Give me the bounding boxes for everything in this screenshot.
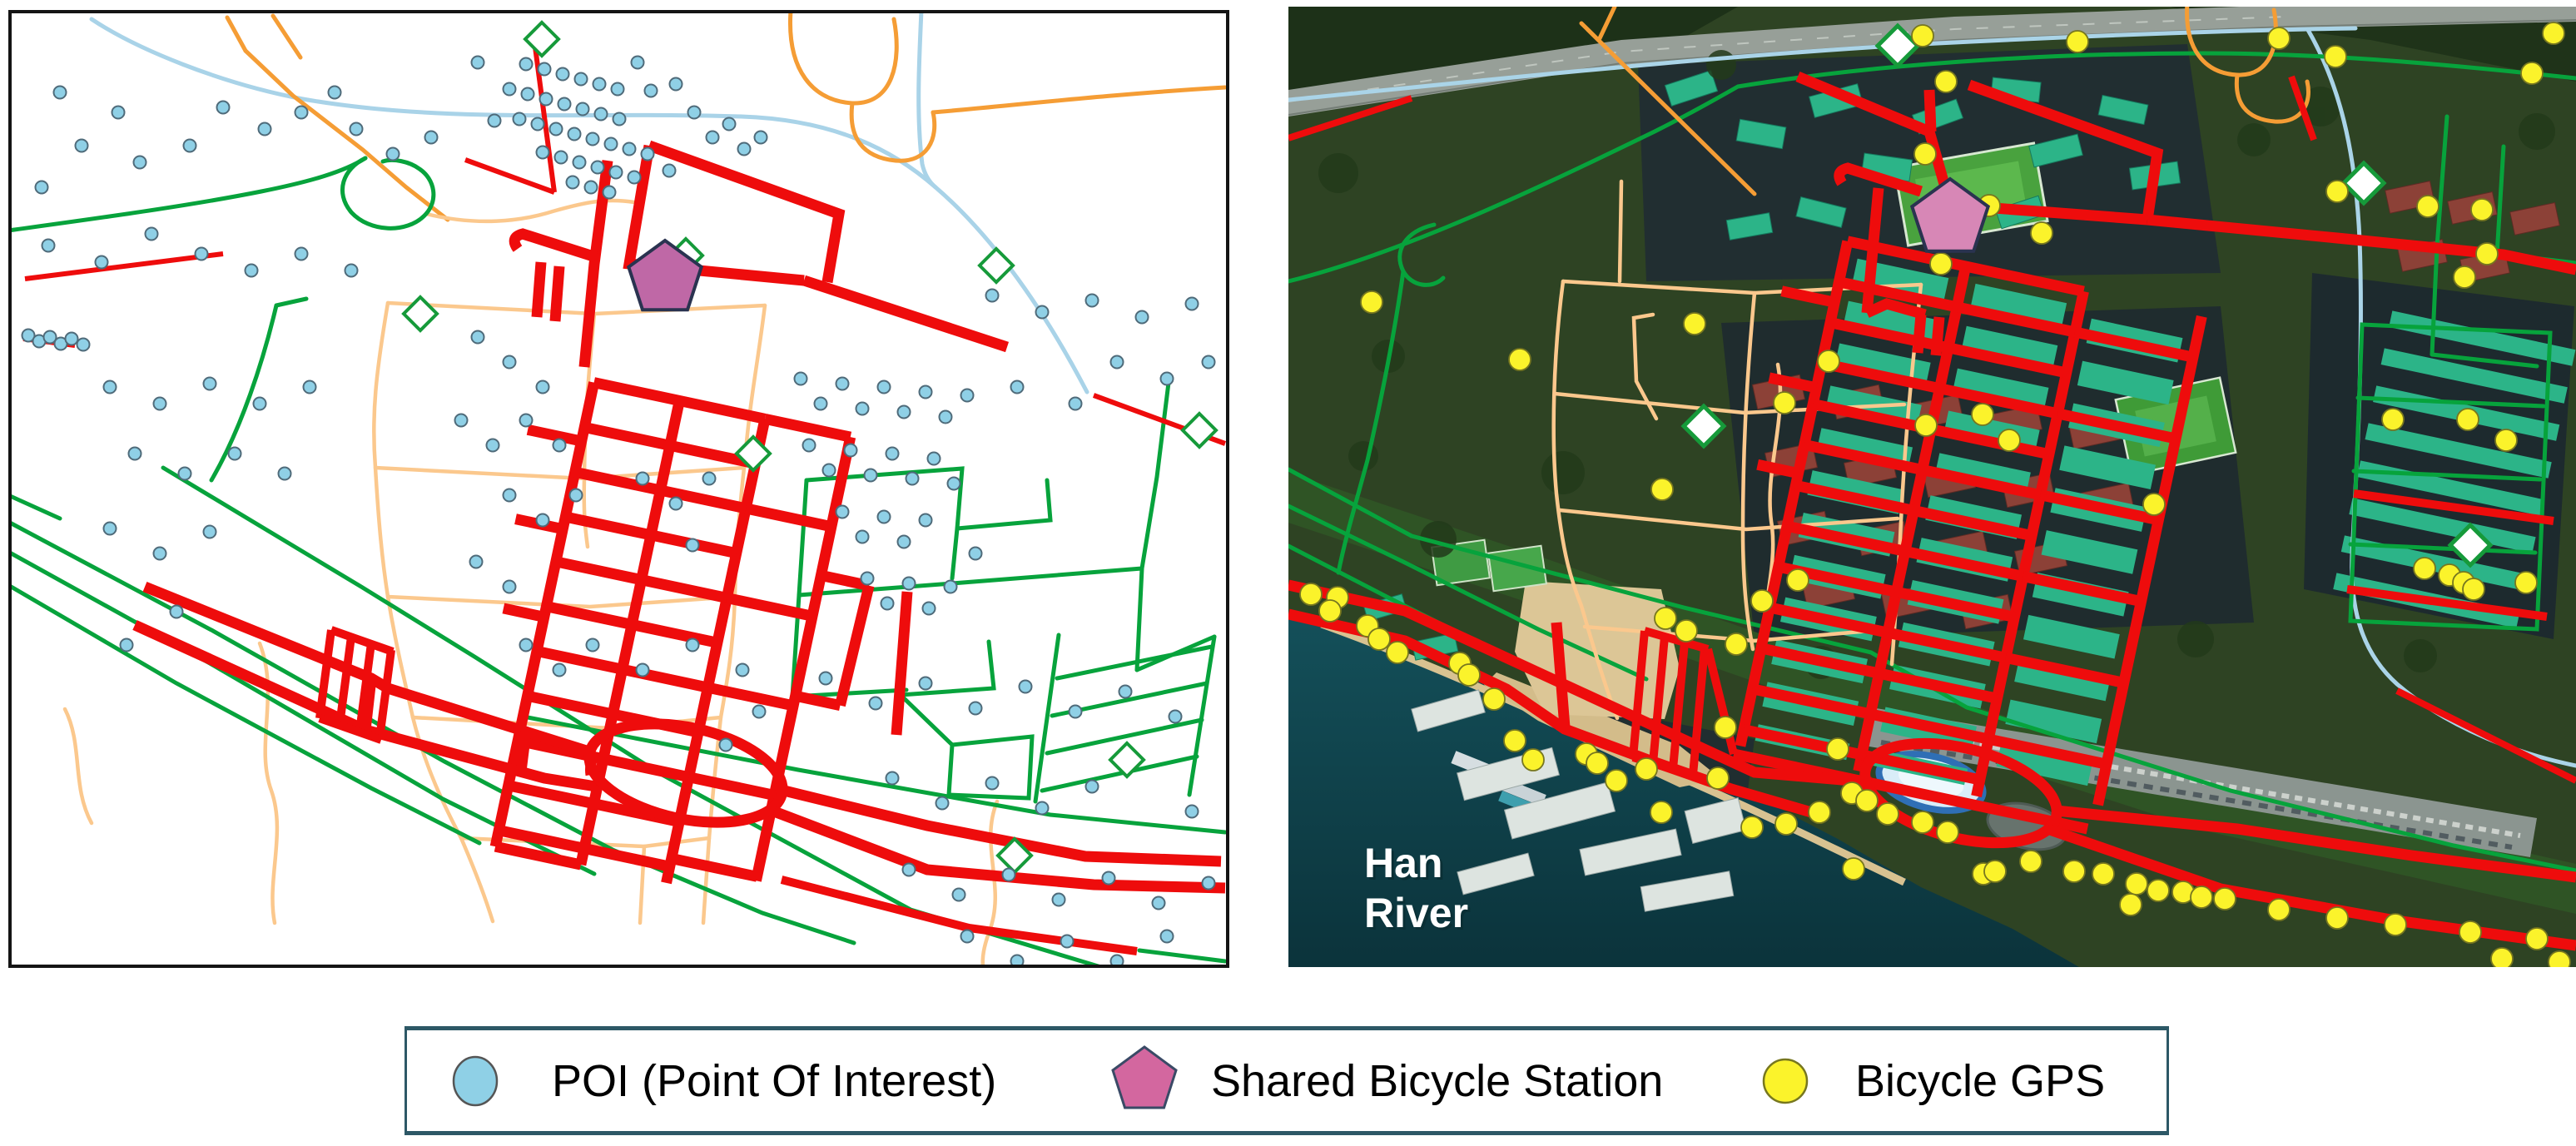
gps-marker bbox=[2326, 907, 2348, 929]
poi-marker bbox=[632, 57, 644, 69]
poi-marker bbox=[295, 248, 308, 260]
poi-marker bbox=[279, 468, 291, 480]
gps-marker bbox=[2147, 880, 2169, 901]
poi-marker bbox=[970, 548, 982, 560]
poi-marker bbox=[610, 166, 623, 179]
gps-marker bbox=[2515, 572, 2537, 593]
poi-map-panel bbox=[8, 10, 1229, 968]
gps-marker bbox=[1775, 813, 1797, 835]
poi-dot-layer bbox=[22, 57, 1215, 965]
poi-marker bbox=[134, 156, 146, 169]
gps-marker bbox=[1809, 801, 1830, 823]
poi-marker bbox=[567, 176, 579, 189]
poi-marker bbox=[555, 151, 568, 164]
gps-marker bbox=[1912, 811, 1933, 833]
poi-marker bbox=[898, 406, 911, 419]
poi-marker bbox=[522, 88, 534, 101]
gps-marker bbox=[1300, 583, 1322, 605]
poi-marker bbox=[537, 514, 549, 527]
poi-marker bbox=[687, 639, 699, 652]
poi-marker bbox=[558, 98, 571, 111]
gps-marker bbox=[1715, 717, 1736, 738]
poi-marker bbox=[514, 113, 526, 126]
poi-marker bbox=[1103, 872, 1115, 885]
poi-marker bbox=[472, 57, 484, 69]
gps-marker bbox=[1707, 767, 1729, 789]
poi-marker bbox=[1003, 869, 1015, 881]
poi-marker bbox=[66, 333, 78, 345]
gps-marker bbox=[2543, 22, 2564, 44]
poi-marker bbox=[1111, 356, 1124, 369]
poi-marker bbox=[179, 468, 191, 480]
legend-label-poi: POI (Point Of Interest) bbox=[552, 1055, 996, 1107]
poi-marker bbox=[196, 248, 208, 260]
svg-text:River: River bbox=[1364, 890, 1468, 936]
gps-marker bbox=[1361, 291, 1382, 313]
poi-marker bbox=[1011, 381, 1024, 394]
poi-marker bbox=[472, 331, 484, 344]
diamond-marker bbox=[1110, 743, 1144, 776]
gps-marker bbox=[2491, 948, 2513, 967]
poi-marker bbox=[520, 414, 533, 427]
gps-marker bbox=[2526, 928, 2548, 950]
poi-marker bbox=[229, 448, 241, 460]
poi-marker bbox=[121, 639, 133, 652]
poi-marker bbox=[204, 378, 216, 390]
gps-marker bbox=[1368, 628, 1390, 650]
poi-marker bbox=[489, 115, 501, 127]
gps-marker bbox=[2067, 31, 2088, 52]
poi-marker bbox=[940, 411, 952, 424]
poi-marker bbox=[856, 403, 869, 415]
poi-marker bbox=[154, 398, 166, 410]
poi-marker bbox=[570, 489, 583, 502]
poi-marker bbox=[259, 123, 271, 136]
poi-marker bbox=[537, 381, 549, 394]
gps-marker bbox=[1751, 590, 1773, 612]
poi-marker bbox=[738, 143, 751, 156]
gps-marker bbox=[1914, 143, 1936, 165]
gps-marker bbox=[1606, 770, 1627, 791]
gps-marker bbox=[2457, 409, 2479, 430]
poi-marker bbox=[803, 439, 816, 452]
poi-marker bbox=[553, 664, 566, 677]
poi-marker bbox=[945, 581, 957, 593]
poi-marker bbox=[1086, 295, 1099, 307]
diamond-marker bbox=[980, 249, 1013, 282]
poi-marker bbox=[865, 469, 877, 482]
poi-marker bbox=[870, 697, 882, 710]
poi-marker bbox=[637, 473, 649, 485]
gps-marker bbox=[1509, 349, 1531, 370]
poi-marker bbox=[295, 107, 308, 119]
poi-marker bbox=[823, 464, 836, 477]
poi-marker bbox=[1061, 935, 1074, 948]
poi-marker bbox=[961, 930, 974, 943]
diamond-marker bbox=[525, 22, 558, 56]
poi-marker bbox=[146, 228, 158, 241]
poi-marker bbox=[1186, 298, 1199, 310]
gps-marker bbox=[1725, 633, 1747, 655]
poi-marker bbox=[54, 87, 67, 99]
gps-marker bbox=[1827, 738, 1849, 760]
poi-marker bbox=[1203, 356, 1215, 369]
gps-marker bbox=[1675, 620, 1697, 642]
gps-marker bbox=[2454, 266, 2475, 288]
gps-marker bbox=[1937, 821, 1958, 843]
gps-marker bbox=[2031, 222, 2052, 244]
gps-marker bbox=[1458, 664, 1480, 686]
gps-marker bbox=[1930, 253, 1952, 275]
gps-marker bbox=[2521, 62, 2543, 84]
gps-marker bbox=[2417, 196, 2439, 217]
poi-marker bbox=[76, 140, 88, 152]
poi-marker bbox=[246, 265, 258, 277]
poi-marker bbox=[723, 118, 736, 131]
poi-marker bbox=[1111, 955, 1124, 965]
poi-marker bbox=[936, 797, 949, 810]
poi-marker bbox=[154, 548, 166, 560]
poi-marker bbox=[77, 339, 90, 351]
poi-marker bbox=[903, 578, 916, 590]
gps-marker bbox=[1998, 429, 2020, 451]
poi-marker bbox=[878, 381, 891, 394]
gps-marker bbox=[2326, 181, 2348, 202]
gps-marker bbox=[2463, 578, 2484, 600]
poi-marker bbox=[1020, 681, 1032, 693]
poi-marker bbox=[104, 523, 117, 535]
poi-marker bbox=[1203, 877, 1215, 890]
poi-marker bbox=[1070, 706, 1082, 718]
poi-marker bbox=[906, 473, 919, 485]
gps-marker bbox=[2092, 863, 2114, 885]
poi-marker bbox=[504, 356, 516, 369]
poi-marker bbox=[425, 131, 438, 144]
poi-marker bbox=[856, 531, 869, 543]
gps-marker bbox=[1843, 858, 1864, 880]
poi-marker bbox=[986, 777, 999, 790]
poi-marker bbox=[881, 598, 894, 610]
poi-marker bbox=[605, 138, 618, 151]
gps-marker bbox=[1741, 816, 1763, 838]
poi-marker bbox=[112, 107, 125, 119]
poi-marker bbox=[886, 772, 899, 785]
poi-marker bbox=[986, 290, 999, 302]
poi-marker bbox=[1011, 955, 1024, 965]
gps-marker bbox=[2549, 951, 2570, 967]
poi-marker bbox=[920, 386, 932, 399]
poi-marker bbox=[603, 186, 616, 199]
poi-marker bbox=[592, 161, 604, 174]
diamond-marker bbox=[1183, 414, 1216, 447]
poi-marker bbox=[707, 131, 719, 144]
gps-marker bbox=[2191, 886, 2212, 908]
poi-marker bbox=[129, 448, 141, 460]
poi-marker bbox=[795, 373, 807, 385]
poi-marker bbox=[304, 381, 316, 394]
poi-marker bbox=[1036, 802, 1049, 815]
poi-marker bbox=[387, 148, 400, 161]
poi-marker bbox=[329, 87, 341, 99]
poi-marker bbox=[1053, 894, 1065, 906]
poi-marker bbox=[1136, 311, 1149, 324]
poi-marker bbox=[42, 240, 55, 252]
poi-marker bbox=[628, 171, 641, 184]
poi-marker bbox=[961, 389, 974, 402]
poi-marker bbox=[254, 398, 266, 410]
legend-label-station: Shared Bicycle Station bbox=[1211, 1055, 1663, 1107]
poi-marker bbox=[845, 444, 857, 457]
poi-marker bbox=[455, 414, 468, 427]
poi-marker bbox=[539, 63, 551, 76]
diamond-marker bbox=[404, 297, 437, 330]
poi-marker bbox=[532, 118, 544, 131]
poi-marker bbox=[953, 889, 965, 901]
poi-marker bbox=[504, 581, 516, 593]
svg-text:Han: Han bbox=[1364, 840, 1442, 886]
gps-marker bbox=[1522, 749, 1544, 771]
poi-marker bbox=[670, 498, 682, 510]
gps-marker bbox=[2268, 27, 2290, 49]
poi-marker bbox=[753, 706, 766, 718]
poi-marker bbox=[898, 536, 911, 548]
poi-marker bbox=[836, 506, 849, 518]
gps-marker bbox=[1877, 803, 1898, 825]
poi-marker bbox=[470, 556, 483, 568]
poi-marker bbox=[928, 453, 941, 465]
poi-marker bbox=[350, 123, 363, 136]
poi-marker bbox=[637, 664, 649, 677]
gps-marker bbox=[2382, 409, 2404, 430]
poi-marker bbox=[1186, 806, 1199, 818]
gps-marker bbox=[1787, 569, 1809, 591]
poi-marker bbox=[568, 128, 581, 141]
poi-marker bbox=[171, 606, 183, 618]
gps-marker bbox=[1915, 414, 1937, 436]
poi-map-svg bbox=[12, 13, 1226, 965]
poi-marker bbox=[737, 664, 749, 677]
poi-marker bbox=[587, 639, 599, 652]
gps-marker bbox=[2476, 243, 2498, 265]
gps-marker bbox=[1483, 688, 1505, 710]
gps-marker bbox=[2414, 558, 2435, 579]
gps-marker bbox=[1319, 600, 1341, 622]
poi-marker bbox=[587, 133, 599, 146]
figure-page: Han River Han River POI (Point Of Intere… bbox=[0, 0, 2576, 1146]
poi-marker bbox=[923, 603, 936, 615]
poi-marker bbox=[623, 143, 636, 156]
gps-marker bbox=[1684, 313, 1705, 335]
poi-marker bbox=[878, 511, 891, 523]
poi-marker bbox=[861, 573, 874, 585]
gps-marker bbox=[1912, 25, 1933, 47]
poi-marker bbox=[820, 672, 832, 685]
gps-marker bbox=[2459, 921, 2481, 943]
poi-marker bbox=[970, 702, 982, 715]
gps-marker bbox=[2385, 914, 2406, 935]
poi-marker bbox=[688, 107, 701, 119]
poi-marker bbox=[886, 448, 899, 460]
poi-marker bbox=[613, 113, 626, 126]
poi-marker bbox=[345, 265, 358, 277]
poi-marker bbox=[553, 439, 566, 452]
gps-marker bbox=[2495, 429, 2517, 451]
station-legend-icon bbox=[1109, 1043, 1179, 1119]
poi-marker bbox=[575, 73, 588, 86]
poi-marker bbox=[504, 83, 516, 96]
poi-marker bbox=[948, 478, 960, 490]
poi-marker bbox=[645, 85, 658, 97]
poi-marker bbox=[1070, 398, 1082, 410]
poi-marker bbox=[687, 539, 699, 552]
gps-marker bbox=[1774, 392, 1795, 414]
gps-marker bbox=[1935, 71, 1957, 92]
poi-marker bbox=[670, 78, 682, 91]
poi-marker bbox=[663, 165, 676, 177]
gps-marker bbox=[1972, 404, 1993, 425]
satellite-map-panel: Han River Han River bbox=[1288, 7, 2576, 967]
poi-marker bbox=[504, 489, 516, 502]
poi-marker bbox=[903, 864, 916, 876]
satellite-map-svg: Han River Han River bbox=[1288, 7, 2576, 967]
poi-marker bbox=[557, 68, 569, 81]
poi-marker bbox=[1161, 373, 1174, 385]
poi-marker bbox=[612, 83, 624, 96]
gps-marker bbox=[2471, 199, 2493, 221]
legend-label-gps: Bicycle GPS bbox=[1855, 1055, 2105, 1107]
poi-marker bbox=[920, 514, 932, 527]
poi-marker bbox=[577, 103, 589, 116]
poi-marker bbox=[1161, 930, 1174, 943]
poi-marker bbox=[550, 123, 563, 136]
poi-marker bbox=[520, 639, 533, 652]
poi-marker bbox=[487, 439, 499, 452]
gps-marker bbox=[2143, 494, 2165, 515]
poi-marker bbox=[703, 473, 716, 485]
gps-marker bbox=[2063, 861, 2085, 882]
gps-marker bbox=[1655, 608, 1676, 629]
poi-marker bbox=[593, 78, 606, 91]
poi-marker bbox=[836, 378, 849, 390]
gps-marker bbox=[2020, 851, 2042, 872]
poi-marker bbox=[1036, 306, 1049, 319]
poi-marker bbox=[755, 131, 767, 144]
poi-marker bbox=[1153, 897, 1165, 910]
poi-marker bbox=[104, 381, 117, 394]
gps-legend-icon bbox=[1761, 1057, 1809, 1105]
legend: POI (Point Of Interest) Shared Bicycle S… bbox=[405, 1026, 2169, 1135]
gps-marker bbox=[1651, 479, 1673, 500]
poi-marker bbox=[920, 677, 932, 690]
poi-legend-icon bbox=[452, 1054, 499, 1108]
poi-marker bbox=[815, 398, 827, 410]
gps-marker bbox=[1650, 801, 1672, 823]
poi-marker bbox=[1119, 686, 1132, 698]
poi-marker bbox=[540, 93, 553, 106]
poi-marker bbox=[96, 256, 108, 269]
gps-marker bbox=[1586, 752, 1608, 774]
gps-marker bbox=[2214, 888, 2236, 910]
gps-marker bbox=[2120, 894, 2142, 915]
poi-marker bbox=[217, 102, 230, 114]
poi-marker bbox=[642, 148, 654, 161]
poi-marker bbox=[537, 146, 549, 159]
gps-marker bbox=[1818, 350, 1839, 372]
poi-marker bbox=[1169, 711, 1182, 723]
poi-marker bbox=[585, 181, 598, 194]
gps-marker bbox=[1504, 730, 1526, 752]
poi-marker bbox=[573, 156, 586, 169]
gps-marker bbox=[1984, 861, 2006, 882]
poi-marker bbox=[204, 526, 216, 538]
gps-marker bbox=[1856, 790, 1878, 811]
gps-marker bbox=[2268, 899, 2290, 920]
poi-marker bbox=[184, 140, 196, 152]
poi-marker bbox=[520, 58, 533, 71]
poi-marker bbox=[1086, 781, 1099, 793]
gps-marker bbox=[2325, 46, 2346, 67]
gps-marker bbox=[2126, 873, 2147, 895]
poi-marker bbox=[720, 739, 732, 752]
poi-marker bbox=[595, 108, 608, 121]
poi-marker bbox=[36, 181, 48, 194]
gps-marker bbox=[1635, 758, 1657, 780]
gps-marker bbox=[1387, 642, 1408, 663]
